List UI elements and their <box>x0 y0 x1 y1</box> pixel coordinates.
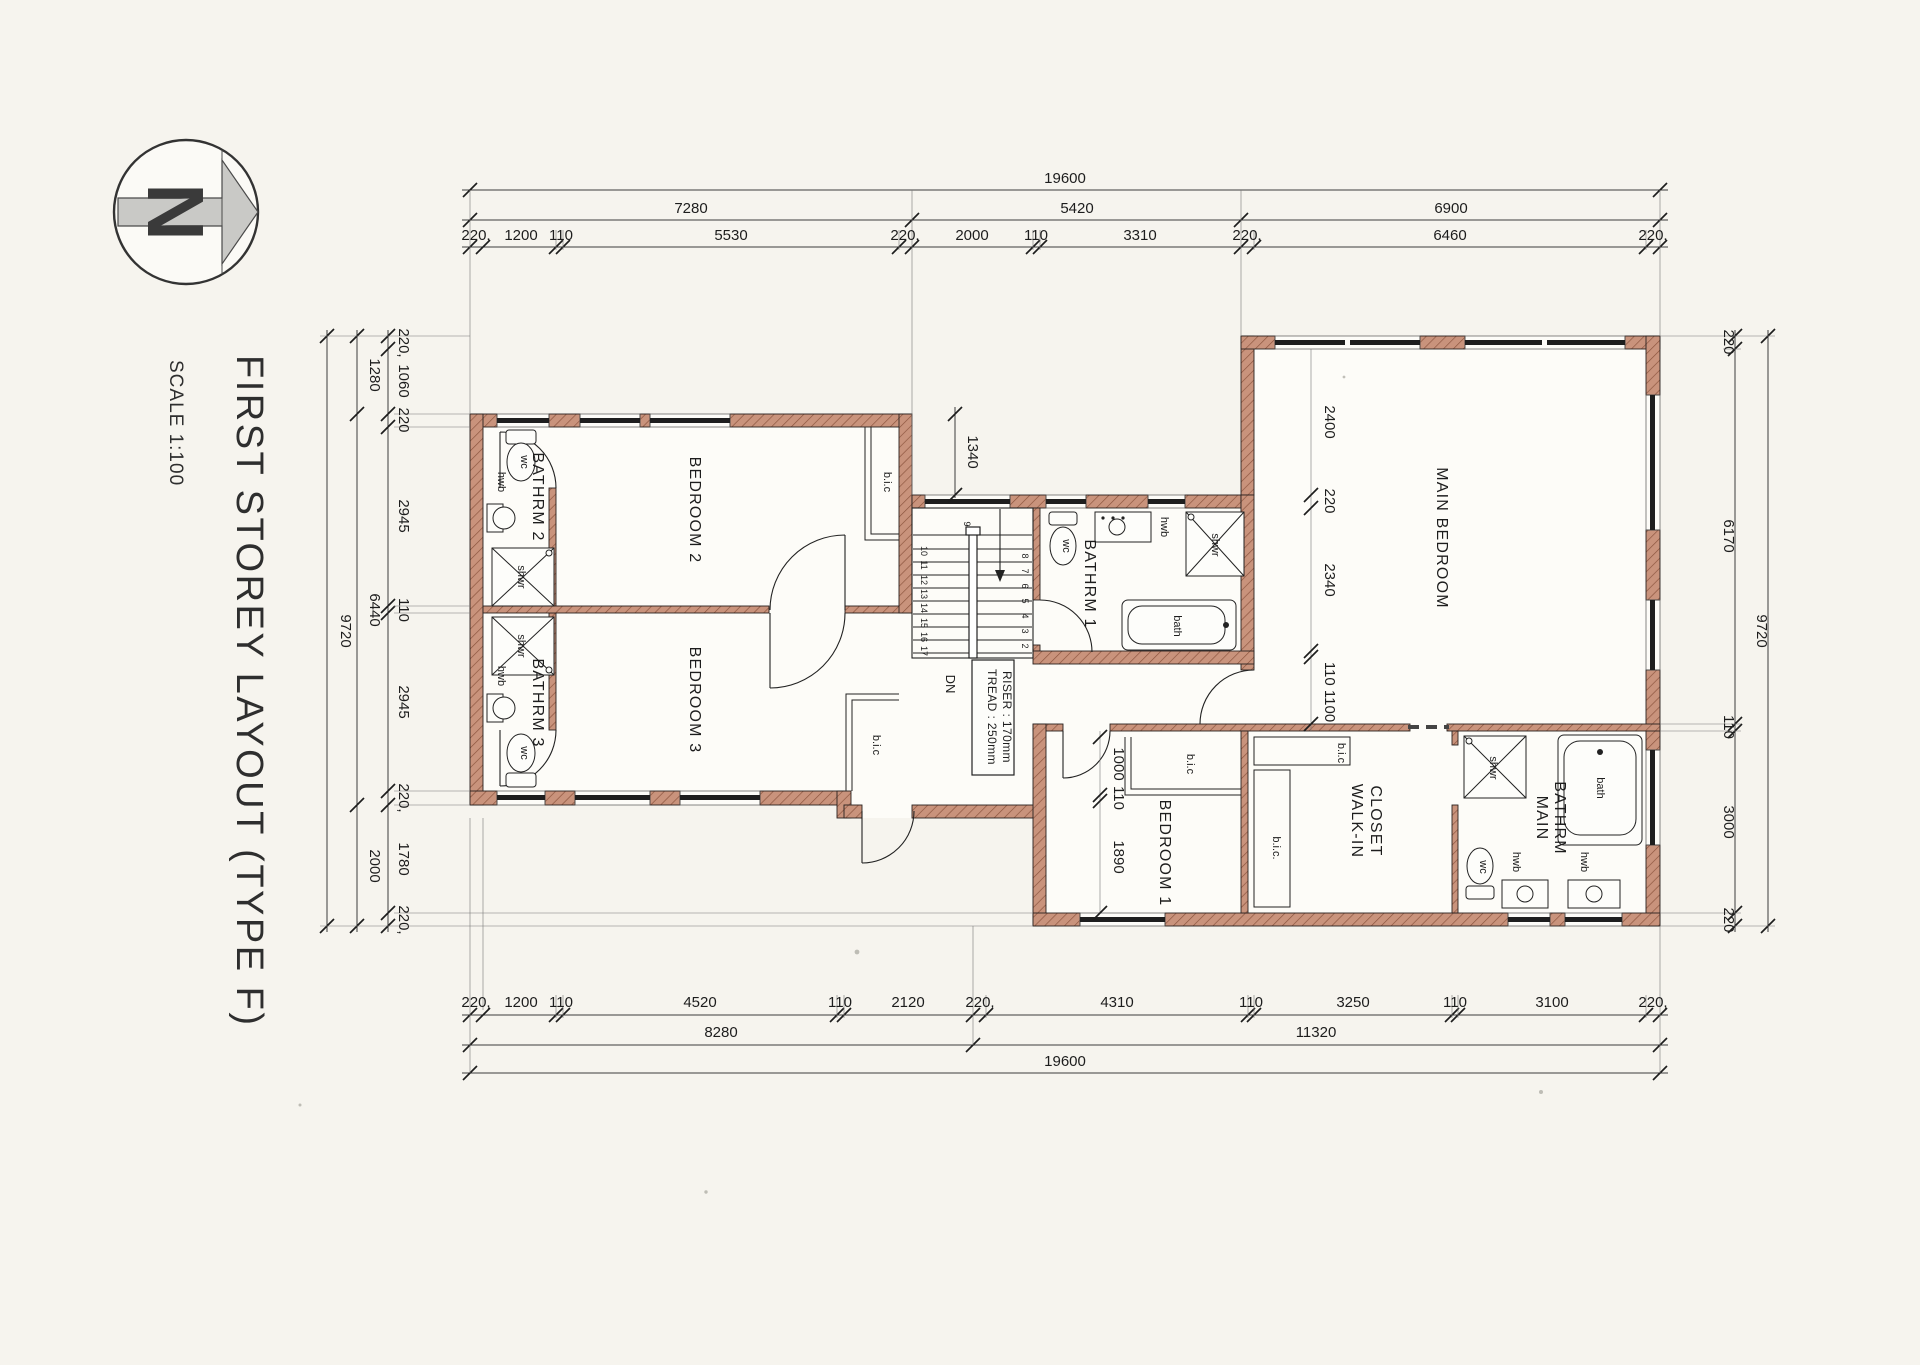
svg-text:10: 10 <box>919 546 929 556</box>
svg-text:110: 110 <box>1443 994 1467 1011</box>
room-label-bedroom3: BEDROOM 3 <box>686 647 703 754</box>
svg-text:5: 5 <box>1020 598 1030 603</box>
svg-text:2340: 2340 <box>1321 563 1338 596</box>
stair-down-label: DN <box>943 675 958 694</box>
room-label-bic: b.i.c <box>870 735 882 756</box>
svg-text:2945: 2945 <box>395 685 412 718</box>
svg-text:wc: wc <box>1060 538 1072 553</box>
svg-text:5530: 5530 <box>714 227 747 244</box>
room-label-bic: b.i.c <box>881 472 893 493</box>
svg-text:1780: 1780 <box>395 842 412 875</box>
svg-text:1000: 1000 <box>1110 747 1127 780</box>
svg-text:110: 110 <box>395 598 412 622</box>
svg-text:8280: 8280 <box>704 1024 737 1041</box>
room-label-bedroom2: BEDROOM 2 <box>686 457 703 564</box>
svg-text:wc: wc <box>518 454 530 469</box>
svg-text:hwb: hwb <box>1578 852 1590 872</box>
svg-text:hwb: hwb <box>495 472 507 492</box>
svg-text:shwr: shwr <box>1487 756 1499 780</box>
svg-text:220,: 220, <box>1232 227 1261 244</box>
svg-text:110: 110 <box>1239 994 1263 1011</box>
vanity-basin <box>1568 880 1620 908</box>
svg-text:5420: 5420 <box>1060 200 1093 217</box>
svg-text:4: 4 <box>1020 613 1030 618</box>
vanity-basin <box>1095 512 1151 542</box>
svg-text:12: 12 <box>919 575 929 585</box>
svg-text:220: 220 <box>1321 488 1338 513</box>
svg-text:14: 14 <box>919 603 929 613</box>
svg-text:220,: 220, <box>395 905 412 934</box>
svg-text:wc: wc <box>518 745 530 760</box>
svg-text:220,: 220, <box>1638 227 1667 244</box>
north-letter: N <box>131 183 220 241</box>
svg-text:1200: 1200 <box>504 994 537 1011</box>
room-label-bathrm3: BATHRM 3 <box>529 658 546 747</box>
svg-text:6: 6 <box>1020 583 1030 588</box>
scale-label: SCALE 1:100 <box>165 360 186 486</box>
svg-text:7: 7 <box>1020 568 1030 573</box>
floor-plan-sheet: N FIRST STOREY LAYOUT (TYPE F) SCALE 1:1… <box>0 0 1920 1365</box>
dim-label: 19600 <box>1044 170 1086 187</box>
svg-text:bath: bath <box>1594 777 1606 798</box>
svg-text:wc: wc <box>1477 859 1489 874</box>
svg-text:4310: 4310 <box>1100 994 1133 1011</box>
svg-text:1340: 1340 <box>964 435 981 468</box>
svg-text:4520: 4520 <box>683 994 716 1011</box>
svg-text:110: 110 <box>828 994 852 1011</box>
svg-text:2945: 2945 <box>395 499 412 532</box>
svg-text:1280: 1280 <box>366 358 383 391</box>
svg-text:220,: 220, <box>461 227 490 244</box>
room-label-bic: b.i.c <box>1335 743 1347 764</box>
svg-text:3000: 3000 <box>1720 805 1737 838</box>
svg-text:2120: 2120 <box>891 994 924 1011</box>
window-glazing <box>497 418 549 423</box>
svg-text:110 1100: 110 1100 <box>1321 662 1338 722</box>
svg-text:2400: 2400 <box>1321 405 1338 438</box>
svg-text:15: 15 <box>919 618 929 628</box>
stair-num: 9 <box>962 521 972 526</box>
page-title: FIRST STOREY LAYOUT (TYPE F) <box>228 355 270 1028</box>
svg-text:1200: 1200 <box>504 227 537 244</box>
room-label-bic: b.i.c. <box>1270 836 1282 859</box>
room-label-bathrm1: BATHRM 1 <box>1081 539 1098 628</box>
dim-right: 220 6170 110 3000 220 9720 <box>1660 329 1775 933</box>
svg-text:2000: 2000 <box>955 227 988 244</box>
svg-text:110: 110 <box>549 994 573 1011</box>
dim-ticks <box>463 183 1667 254</box>
room-label-main-bedroom: MAIN BEDROOM <box>1433 467 1450 609</box>
svg-text:shwr: shwr <box>515 565 527 589</box>
room-label-bic: b.i.c <box>1184 754 1196 775</box>
svg-text:hwb: hwb <box>1158 517 1170 537</box>
svg-text:6170: 6170 <box>1720 519 1737 552</box>
stair-note-tread: TREAD : 250mm <box>985 669 999 765</box>
room-label-walkin-closet: WALK-IN <box>1348 784 1365 858</box>
svg-text:17: 17 <box>919 646 929 656</box>
stair-rail <box>969 533 977 658</box>
svg-text:11: 11 <box>919 560 929 569</box>
svg-text:3250: 3250 <box>1336 994 1369 1011</box>
svg-text:shwr: shwr <box>1209 533 1221 557</box>
svg-text:9720: 9720 <box>1753 614 1770 647</box>
svg-text:220: 220 <box>1720 907 1737 932</box>
room-label-bathrm2: BATHRM 2 <box>529 452 546 541</box>
svg-text:110: 110 <box>549 227 573 244</box>
svg-text:1890: 1890 <box>1110 840 1127 873</box>
titleblock: FIRST STOREY LAYOUT (TYPE F) SCALE 1:100 <box>165 355 270 1028</box>
svg-text:220,: 220, <box>461 994 490 1011</box>
svg-text:110: 110 <box>1720 715 1737 739</box>
svg-text:hwb: hwb <box>495 666 507 686</box>
stair-note-riser: RISER : 170mm <box>1000 671 1014 763</box>
north-arrow-icon: N <box>114 140 258 284</box>
svg-text:1060: 1060 <box>395 364 412 397</box>
svg-text:shwr: shwr <box>515 634 527 658</box>
svg-text:220,: 220, <box>395 328 412 357</box>
room-label-bedroom1: BEDROOM 1 <box>1156 800 1173 907</box>
svg-text:2: 2 <box>1020 643 1030 648</box>
svg-text:220,: 220, <box>395 783 412 812</box>
svg-text:2000: 2000 <box>366 849 383 882</box>
svg-text:19600: 19600 <box>1044 1053 1086 1070</box>
svg-text:6460: 6460 <box>1433 227 1466 244</box>
svg-text:220,: 220, <box>965 994 994 1011</box>
svg-text:hwb: hwb <box>1510 852 1522 872</box>
svg-text:BATHRM: BATHRM <box>1551 781 1568 855</box>
svg-text:CLOSET: CLOSET <box>1367 785 1384 856</box>
svg-text:110: 110 <box>1110 786 1127 810</box>
svg-text:220: 220 <box>395 407 412 432</box>
svg-text:bath: bath <box>1171 615 1183 636</box>
svg-text:8: 8 <box>1020 553 1030 558</box>
svg-text:13: 13 <box>919 589 929 599</box>
vanity-basin <box>1502 880 1548 908</box>
svg-text:11320: 11320 <box>1296 1024 1337 1041</box>
svg-text:3310: 3310 <box>1123 227 1156 244</box>
svg-text:3: 3 <box>1020 628 1030 633</box>
room-label-main-bathrm: MAIN <box>1533 796 1550 841</box>
hall-exterior-door <box>862 811 914 863</box>
svg-text:16: 16 <box>919 632 929 642</box>
floor-plan-drawing: N FIRST STOREY LAYOUT (TYPE F) SCALE 1:1… <box>0 0 1920 1365</box>
svg-text:7280: 7280 <box>674 200 707 217</box>
svg-text:6440: 6440 <box>366 593 383 626</box>
svg-text:220,: 220, <box>890 227 919 244</box>
svg-text:110: 110 <box>1024 227 1048 244</box>
svg-text:220: 220 <box>1720 329 1737 354</box>
svg-text:9720: 9720 <box>337 614 354 647</box>
svg-text:6900: 6900 <box>1434 200 1467 217</box>
svg-text:3100: 3100 <box>1535 994 1568 1011</box>
svg-text:220,: 220, <box>1638 994 1667 1011</box>
